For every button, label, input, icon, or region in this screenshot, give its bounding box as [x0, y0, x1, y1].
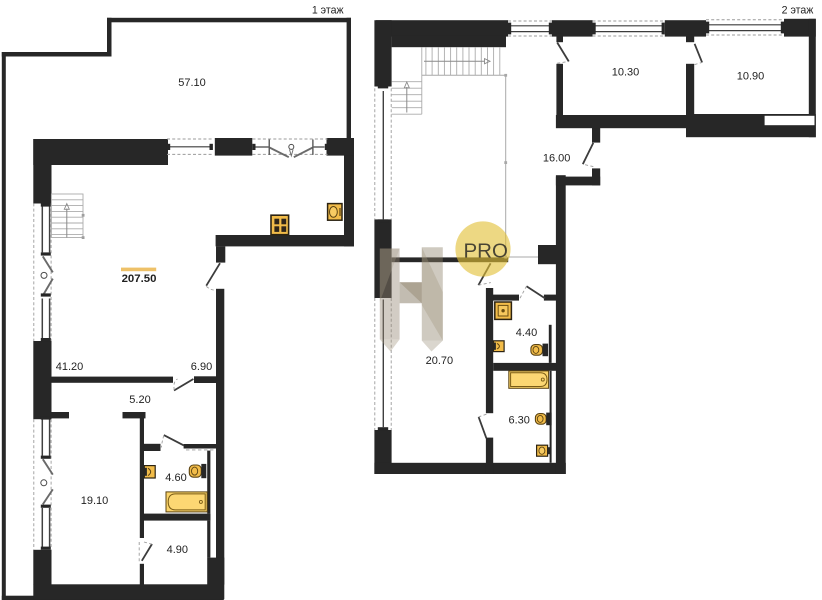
svg-text:20.70: 20.70: [426, 355, 454, 367]
svg-text:19.10: 19.10: [81, 495, 109, 507]
svg-text:16.00: 16.00: [543, 153, 571, 165]
svg-text:6.30: 6.30: [508, 415, 529, 427]
svg-text:4.90: 4.90: [167, 544, 188, 556]
svg-text:10.90: 10.90: [737, 71, 765, 83]
svg-text:6.90: 6.90: [191, 361, 212, 373]
svg-text:1 этаж: 1 этаж: [312, 4, 345, 16]
svg-text:4.40: 4.40: [516, 327, 537, 339]
svg-text:41.20: 41.20: [56, 361, 84, 373]
svg-text:57.10: 57.10: [178, 77, 206, 89]
svg-text:207.50: 207.50: [122, 273, 157, 285]
svg-text:10.30: 10.30: [612, 67, 640, 79]
svg-text:2 этаж: 2 этаж: [782, 4, 815, 16]
svg-text:4.60: 4.60: [165, 472, 186, 484]
svg-text:PRO: PRO: [464, 239, 508, 262]
svg-text:5.20: 5.20: [129, 394, 150, 406]
